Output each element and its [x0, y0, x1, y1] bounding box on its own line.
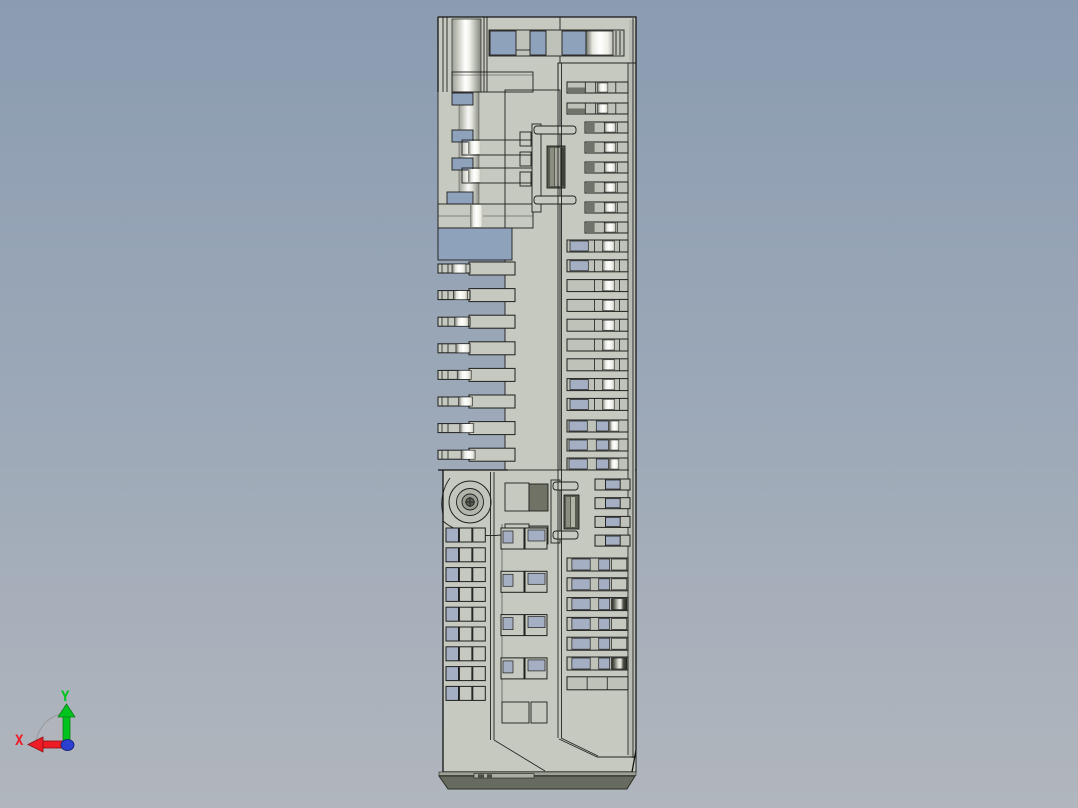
grid-cell [446, 568, 459, 582]
x-axis-label: X [15, 733, 24, 749]
grid-cell [459, 607, 472, 621]
grid-cell [473, 647, 486, 661]
tooth-contact-highlight [453, 291, 467, 300]
grid-cell [446, 587, 459, 601]
slot-row [567, 677, 628, 690]
grid-cell [473, 686, 486, 700]
slot-row [567, 359, 628, 371]
cad-canvas[interactable]: X Y [0, 0, 1078, 808]
grid-cell [446, 667, 459, 681]
metal-pin-top [452, 19, 481, 92]
grid-cell [446, 548, 459, 562]
comb-tooth [469, 262, 515, 275]
grid-cell [473, 667, 486, 681]
comb-tooth [469, 448, 515, 461]
comb-tooth [469, 315, 515, 328]
grid-cell [459, 627, 472, 641]
tooth-contact-highlight [455, 317, 469, 326]
slot-row [567, 299, 628, 311]
tooth-contact-highlight [460, 424, 474, 433]
grid-cell [459, 568, 472, 582]
grid-cell [446, 627, 459, 641]
grid-cell [473, 587, 486, 601]
grid-cell [446, 647, 459, 661]
comb-tooth [469, 342, 515, 355]
comb-tooth [469, 368, 515, 381]
tooth-contact-highlight [457, 370, 471, 379]
tooth-contact-highlight [461, 450, 475, 459]
tooth-contact-highlight [459, 397, 473, 406]
y-axis-label: Y [61, 689, 70, 705]
tooth-contact-highlight [452, 264, 466, 273]
grid-cell [446, 607, 459, 621]
grid-cell [473, 568, 486, 582]
top-slot-opening [489, 30, 624, 56]
grid-cell [459, 667, 472, 681]
shiny-contact [586, 31, 613, 55]
right-edge-shade [629, 20, 635, 758]
comb-tooth [469, 289, 515, 302]
z-axis-origin-dot [61, 740, 74, 751]
slot-row [567, 280, 628, 292]
grid-cell [459, 647, 472, 661]
grid-cell [473, 607, 486, 621]
grid-cell [459, 528, 472, 542]
comb-tooth [469, 422, 515, 435]
grid-cell [459, 587, 472, 601]
tooth-contact-highlight [456, 344, 470, 353]
cad-viewport: X Y [0, 0, 1078, 808]
slot-row [567, 339, 628, 351]
grid-cell [446, 686, 459, 700]
slot-row [567, 319, 628, 331]
grid-cell [473, 627, 486, 641]
grid-cell [446, 528, 459, 542]
grid-cell [473, 548, 486, 562]
grid-cell [473, 528, 486, 542]
grid-cell [459, 548, 472, 562]
comb-gap [438, 228, 512, 260]
comb-tooth [469, 395, 515, 408]
base-strip [439, 772, 636, 789]
grid-cell [459, 686, 472, 700]
